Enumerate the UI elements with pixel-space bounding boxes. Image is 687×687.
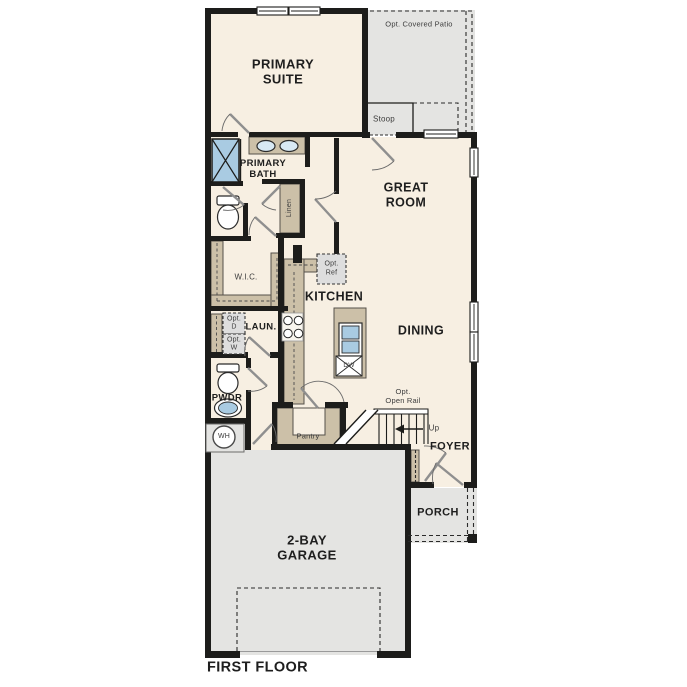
garage-label: 2-BAY GARAGE bbox=[277, 533, 336, 564]
wic-label: W.I.C. bbox=[235, 272, 258, 281]
stair-rail bbox=[374, 409, 428, 414]
primary-suite-label: PRIMARY SUITE bbox=[252, 57, 314, 88]
foyer-label: FOYER bbox=[430, 441, 470, 454]
laundry-label: LAUN. bbox=[245, 321, 276, 332]
stoop-label: Stoop bbox=[373, 114, 395, 123]
powder-label: PWDR bbox=[212, 392, 243, 403]
great-room-label: GREAT ROOM bbox=[384, 180, 429, 210]
porch-post bbox=[468, 534, 477, 543]
dishwasher-label: DW bbox=[343, 362, 354, 370]
opt-washer-label: Opt. W bbox=[227, 337, 241, 354]
floorplan-drawing bbox=[0, 0, 687, 687]
opt-dryer-label: Opt. D bbox=[227, 316, 241, 333]
linen-label: Linen bbox=[286, 199, 294, 217]
opt-open-rail-label: Opt. Open Rail bbox=[385, 388, 420, 406]
primary-bath-label: PRIMARY BATH bbox=[240, 158, 286, 180]
plan-title: FIRST FLOOR bbox=[207, 659, 347, 676]
pantry-label: Pantry bbox=[297, 433, 320, 442]
dining-label: DINING bbox=[398, 324, 444, 339]
toilet-icon-powder bbox=[217, 364, 239, 394]
porch-label: PORCH bbox=[417, 507, 459, 520]
island-sink-icon bbox=[339, 323, 362, 356]
shower-icon bbox=[212, 139, 239, 182]
water-heater-label: WH bbox=[218, 433, 230, 441]
stove-icon bbox=[282, 313, 303, 341]
toilet-icon-bath bbox=[217, 196, 239, 229]
kitchen-label: KITCHEN bbox=[305, 290, 363, 305]
covered-patio-label: Opt. Covered Patio bbox=[344, 21, 494, 30]
up-label: Up bbox=[429, 423, 440, 432]
first-floor-plan: PRIMARY SUITE Opt. Covered Patio Stoop P… bbox=[0, 0, 687, 687]
opt-ref-label: Opt. Ref bbox=[324, 260, 338, 278]
